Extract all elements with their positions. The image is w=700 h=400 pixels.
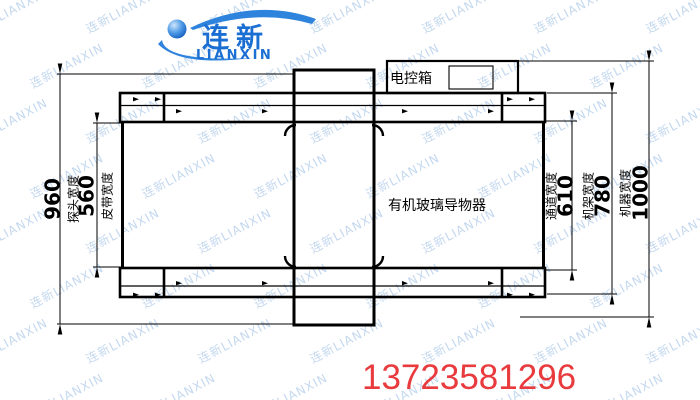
control-box-label: 电控箱 bbox=[390, 71, 432, 87]
dim-value-channel: 610 bbox=[554, 175, 578, 217]
dim-value-frame: 780 bbox=[591, 175, 615, 217]
logo-ball-icon bbox=[168, 20, 187, 39]
lianxin-logo: 连新 LIANXIN bbox=[158, 10, 316, 63]
logo-text-en: LIANXIN bbox=[196, 48, 273, 63]
dim-value-belt: 560 bbox=[75, 175, 99, 217]
guide-label: 有机玻璃导物器 bbox=[388, 197, 486, 214]
technical-drawing-page: 连新LIANXIN连新LIANXIN连新LIANXIN连新LIANXIN连新LI… bbox=[0, 0, 700, 400]
dim-value-machine: 1000 bbox=[629, 165, 653, 221]
machine-body bbox=[120, 61, 545, 325]
phone-number: 13723581296 bbox=[362, 358, 576, 397]
dim-label-belt: 皮带宽度 bbox=[100, 172, 115, 220]
machine-top-view-drawing: 连新 LIANXIN bbox=[0, 0, 700, 400]
top-rail bbox=[120, 93, 545, 122]
detector-tunnel bbox=[294, 70, 374, 325]
tunnel-corner-marks bbox=[285, 125, 383, 267]
dim-value-probe: 960 bbox=[41, 178, 65, 220]
bottom-rail bbox=[120, 268, 545, 297]
